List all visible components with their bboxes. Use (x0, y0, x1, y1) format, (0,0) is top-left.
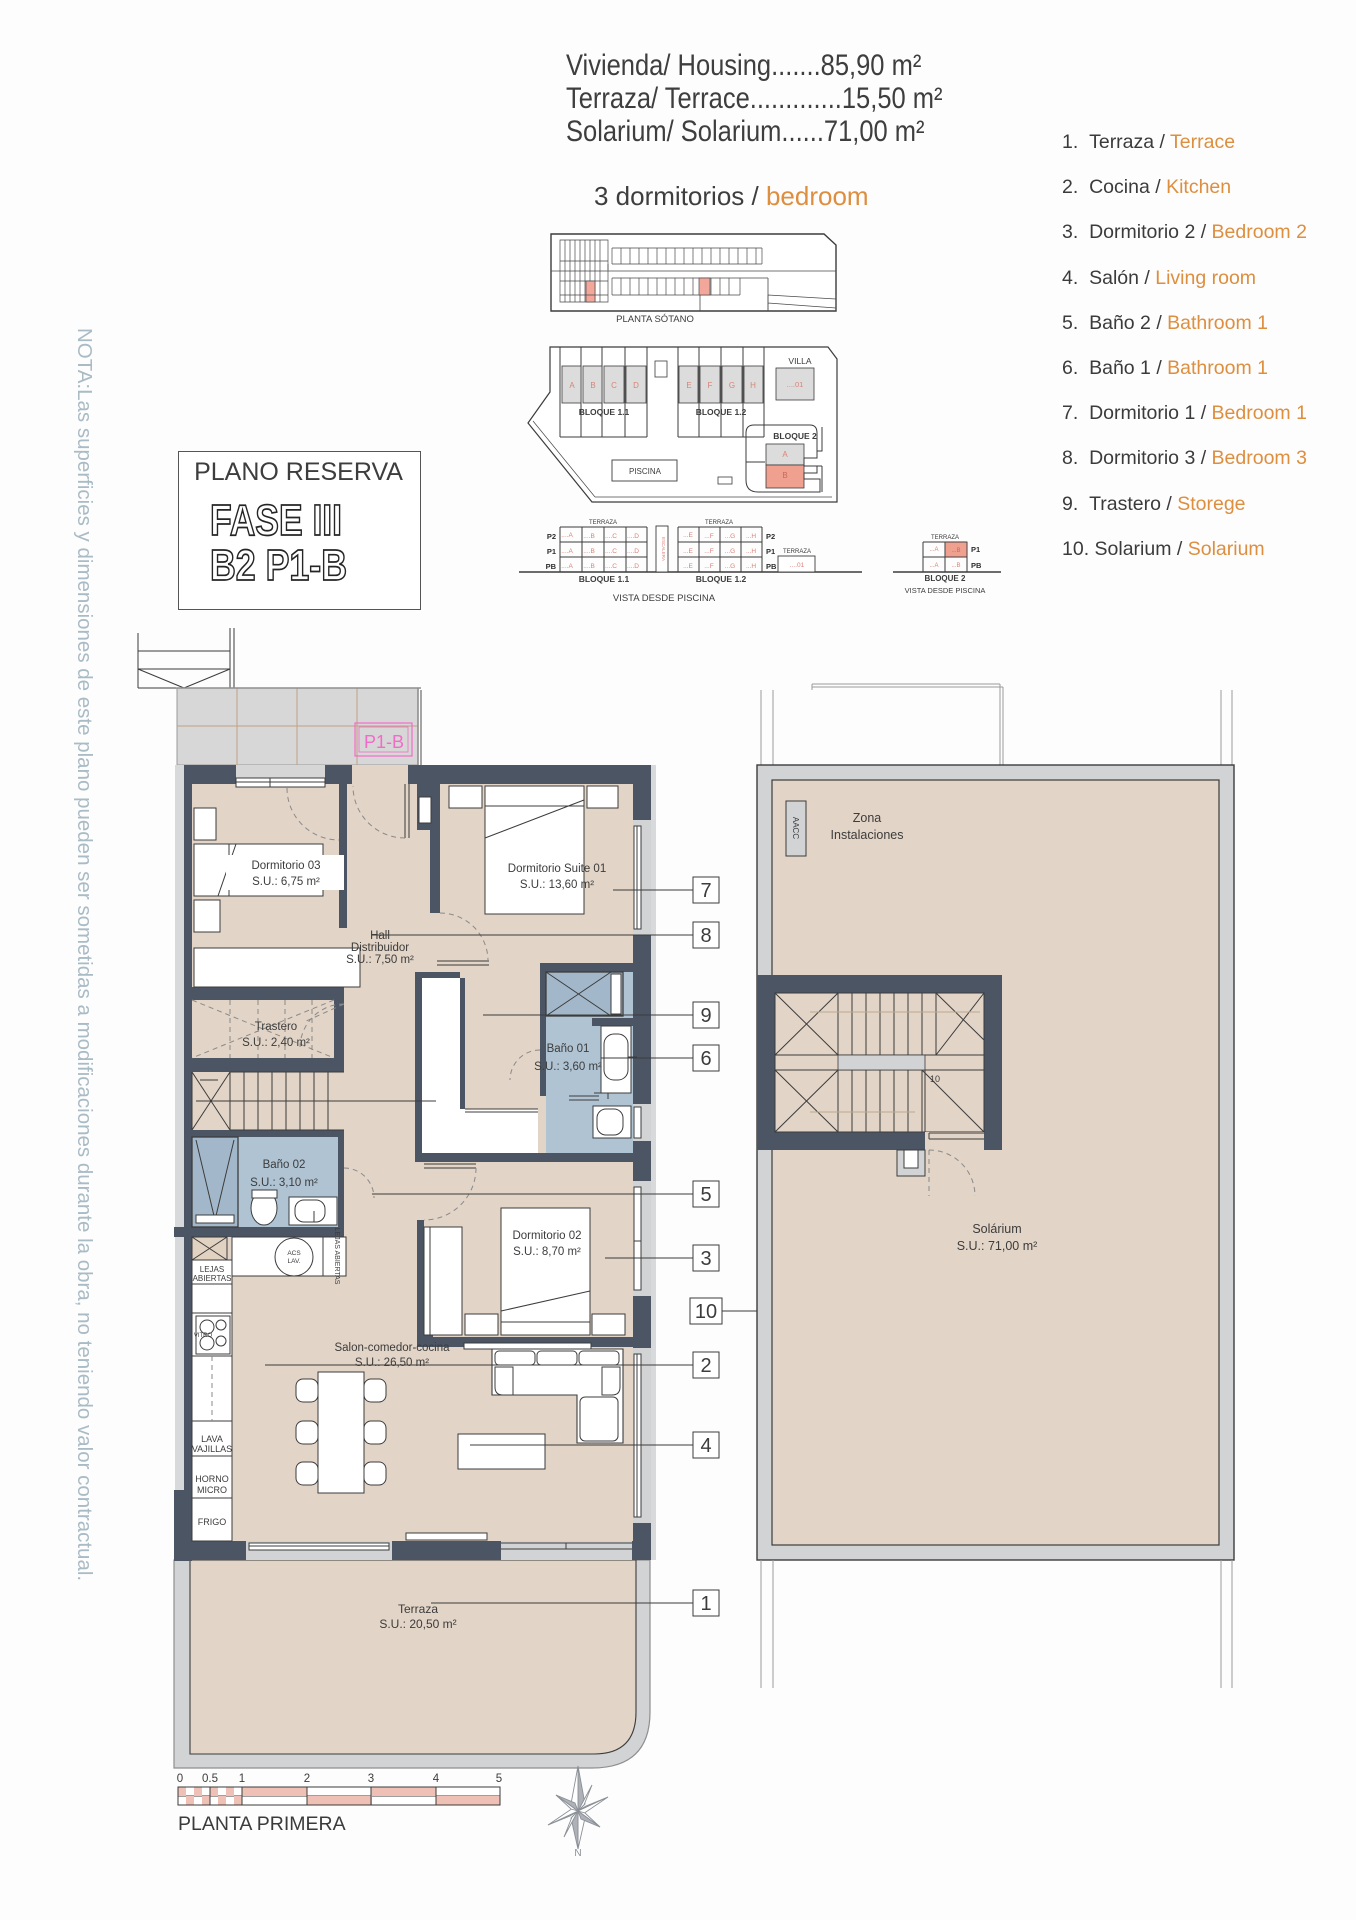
svg-text:F: F (708, 381, 713, 390)
svg-text:LAVA: LAVA (201, 1434, 223, 1444)
svg-text:5: 5 (700, 1184, 711, 1206)
svg-text:BLOQUE 2: BLOQUE 2 (773, 431, 817, 441)
svg-text:....A: ....A (561, 532, 573, 539)
svg-text:...E: ...E (683, 532, 693, 539)
svg-text:....A: ....A (561, 548, 573, 555)
svg-text:2: 2 (700, 1355, 711, 1377)
svg-text:1: 1 (700, 1593, 711, 1615)
svg-text:PISCINA: PISCINA (629, 467, 662, 476)
svg-text:TERRAZA: TERRAZA (589, 520, 617, 526)
svg-text:Hall: Hall (370, 930, 390, 942)
svg-text:Zona: Zona (853, 811, 882, 825)
svg-text:8: 8 (700, 925, 711, 947)
svg-text:VITRO: VITRO (194, 1333, 213, 1339)
svg-text:Terraza: Terraza (398, 1602, 438, 1616)
svg-text:....D: ....D (627, 533, 639, 540)
svg-text:BLOQUE 1.1: BLOQUE 1.1 (579, 574, 630, 584)
svg-text:Distribuidor: Distribuidor (351, 942, 409, 954)
svg-text:BLOQUE 1.1: BLOQUE 1.1 (579, 407, 630, 417)
svg-text:...A: ...A (929, 563, 938, 569)
svg-text:LEJAS: LEJAS (200, 1265, 224, 1274)
svg-text:2: 2 (304, 1773, 310, 1785)
svg-text:...B: ...B (951, 548, 960, 554)
svg-text:Dormitorio Suite 01: Dormitorio Suite 01 (508, 863, 606, 875)
svg-text:....A: ....A (561, 563, 573, 570)
svg-text:Baño 02: Baño 02 (263, 1159, 306, 1171)
svg-text:PB: PB (971, 561, 982, 570)
svg-text:S.U.: 3,60 m²: S.U.: 3,60 m² (534, 1061, 602, 1073)
svg-text:TERRAZA: TERRAZA (705, 520, 733, 526)
svg-text:Baño 01: Baño 01 (547, 1043, 590, 1055)
svg-text:S.U.: 13,60 m²: S.U.: 13,60 m² (520, 879, 594, 891)
svg-text:VAJILLAS: VAJILLAS (192, 1444, 232, 1454)
svg-text:...F: ...F (704, 563, 713, 570)
svg-text:E: E (686, 381, 691, 390)
svg-text:ACS: ACS (287, 1250, 301, 1257)
svg-text:S.U.: 6,75 m²: S.U.: 6,75 m² (252, 876, 320, 888)
svg-text:Trastero: Trastero (255, 1021, 297, 1033)
svg-text:BLOQUE 1.2: BLOQUE 1.2 (696, 407, 747, 417)
svg-text:H: H (750, 381, 756, 390)
svg-text:LAV.: LAV. (287, 1258, 300, 1265)
svg-text:...G: ...G (725, 548, 735, 555)
svg-text:...E: ...E (683, 548, 693, 555)
svg-text:P1-B: P1-B (364, 732, 404, 752)
svg-text:A: A (782, 450, 788, 459)
svg-text:VILLA: VILLA (788, 356, 811, 366)
svg-text:P1: P1 (971, 545, 980, 554)
svg-text:7: 7 (700, 880, 711, 902)
svg-text:VISTA DESDE PISCINA: VISTA DESDE PISCINA (905, 586, 986, 595)
svg-text:TERRAZA: TERRAZA (783, 549, 811, 555)
svg-text:4: 4 (433, 1773, 440, 1785)
svg-text:D: D (633, 381, 639, 390)
svg-text:FRIGO: FRIGO (198, 1517, 227, 1527)
svg-text:ESCALERA: ESCALERA (661, 537, 666, 561)
svg-text:A: A (569, 381, 575, 390)
svg-text:9: 9 (700, 1005, 711, 1027)
svg-text:6: 6 (700, 1048, 711, 1070)
svg-text:...H: ...H (746, 563, 756, 570)
svg-text:B: B (590, 381, 595, 390)
svg-text:....C: ....C (605, 548, 617, 555)
svg-text:PLANTA PRIMERA: PLANTA PRIMERA (178, 1813, 346, 1835)
svg-text:N: N (574, 1848, 581, 1859)
svg-text:4: 4 (700, 1435, 711, 1457)
svg-text:VISTA DESDE PISCINA: VISTA DESDE PISCINA (613, 593, 716, 604)
svg-text:0.5: 0.5 (202, 1773, 218, 1785)
svg-text:S.U.: 7,50 m²: S.U.: 7,50 m² (346, 954, 414, 966)
svg-text:10: 10 (930, 1074, 940, 1084)
svg-text:....B: ....B (583, 563, 595, 570)
svg-text:...H: ...H (746, 548, 756, 555)
svg-text:1: 1 (239, 1773, 245, 1785)
svg-text:LEJAS ABIERTAS: LEJAS ABIERTAS (333, 1228, 340, 1285)
svg-text:PB: PB (546, 562, 557, 571)
svg-text:0: 0 (177, 1773, 183, 1785)
svg-text:10: 10 (695, 1301, 717, 1323)
svg-text:P2: P2 (766, 532, 775, 541)
svg-text:PB: PB (766, 562, 777, 571)
svg-text:C: C (611, 381, 617, 390)
svg-text:Salon-comedor-cocina: Salon-comedor-cocina (334, 1342, 450, 1354)
svg-text:Dormitorio 03: Dormitorio 03 (251, 860, 320, 872)
svg-text:P1: P1 (766, 547, 775, 556)
svg-text:Instalaciones: Instalaciones (831, 828, 904, 842)
svg-text:BLOQUE 1.2: BLOQUE 1.2 (696, 574, 747, 584)
svg-text:G: G (729, 381, 735, 390)
svg-text:B: B (782, 471, 787, 480)
svg-text:...E: ...E (683, 563, 693, 570)
svg-text:...G: ...G (725, 533, 735, 540)
svg-text:....C: ....C (605, 533, 617, 540)
svg-text:....B: ....B (583, 548, 595, 555)
svg-text:....D: ....D (627, 548, 639, 555)
svg-text:...F: ...F (704, 548, 713, 555)
svg-text:....C: ....C (605, 563, 617, 570)
svg-text:....01: ....01 (790, 562, 805, 569)
svg-text:MICRO: MICRO (197, 1485, 227, 1495)
svg-text:S.U.: 71,00 m²: S.U.: 71,00 m² (957, 1239, 1038, 1253)
svg-text:S.U.: 8,70 m²: S.U.: 8,70 m² (513, 1246, 581, 1258)
svg-text:Solárium: Solárium (972, 1222, 1021, 1236)
svg-text:S.U.: 26,50 m²: S.U.: 26,50 m² (355, 1357, 429, 1369)
svg-text:3: 3 (368, 1773, 374, 1785)
svg-text:....B: ....B (583, 533, 595, 540)
svg-text:5: 5 (496, 1773, 502, 1785)
svg-text:P1: P1 (547, 547, 556, 556)
svg-text:P2: P2 (547, 532, 556, 541)
svg-text:...H: ...H (746, 533, 756, 540)
svg-text:S.U.: 20,50 m²: S.U.: 20,50 m² (379, 1617, 456, 1631)
svg-text:....D: ....D (627, 563, 639, 570)
svg-text:...A: ...A (929, 547, 938, 553)
svg-text:Dormitorio 02: Dormitorio 02 (512, 1230, 581, 1242)
svg-text:3: 3 (700, 1248, 711, 1270)
svg-text:AACC: AACC (791, 817, 800, 839)
svg-text:....01: ....01 (787, 380, 804, 389)
svg-text:ABIERTAS: ABIERTAS (193, 1274, 232, 1283)
svg-text:BLOQUE 2: BLOQUE 2 (925, 574, 966, 583)
svg-text:TERRAZA: TERRAZA (931, 535, 959, 541)
svg-text:...F: ...F (704, 533, 713, 540)
svg-text:HORNO: HORNO (195, 1474, 229, 1484)
svg-text:...G: ...G (725, 563, 735, 570)
svg-text:PLANTA SÓTANO: PLANTA SÓTANO (616, 314, 694, 325)
svg-text:...B: ...B (951, 563, 960, 569)
svg-text:S.U.: 3,10 m²: S.U.: 3,10 m² (250, 1177, 318, 1189)
